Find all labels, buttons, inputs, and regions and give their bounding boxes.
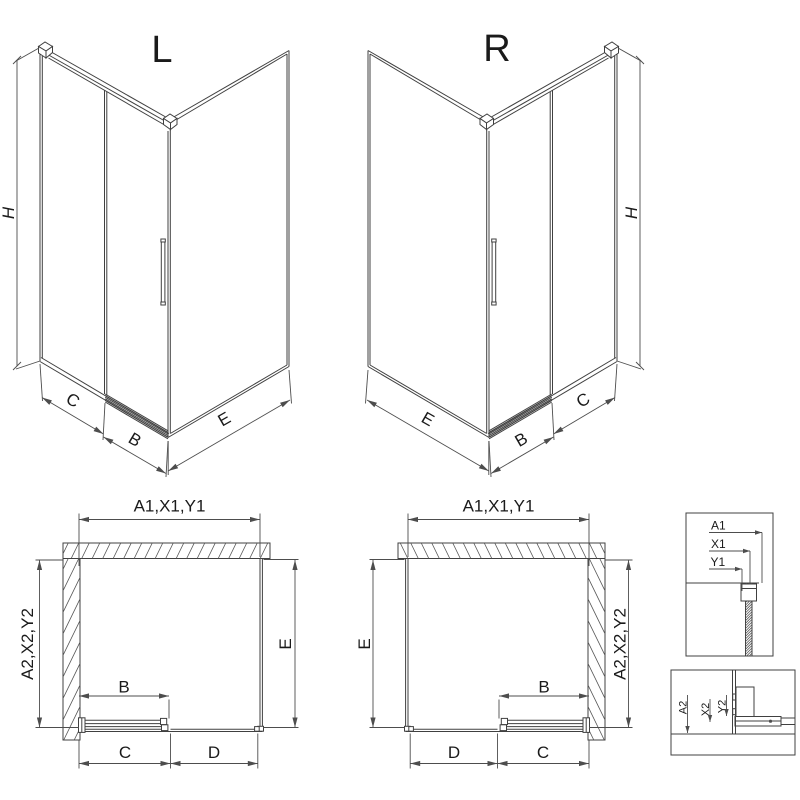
dim-label-e-plan-right: E <box>355 638 374 649</box>
door-handle <box>161 239 165 305</box>
technical-drawing-page: L H C B E R H E B C <box>0 0 800 800</box>
dim-label-a1-right: A1,X1,Y1 <box>463 497 535 516</box>
dim-label-b-plan-right: B <box>538 678 549 697</box>
detail-label-a2: A2 <box>678 701 690 714</box>
dim-label-e-right: E <box>418 408 437 430</box>
rail-screw-dot <box>769 720 772 723</box>
dim-label-c-right: C <box>573 389 593 412</box>
dim-label-h-left: H <box>0 206 18 219</box>
dim-label-b-plan-left: B <box>118 678 129 697</box>
dim-label-a2-right: A2,X2,Y2 <box>611 608 630 680</box>
wall-side-hatch <box>63 559 80 741</box>
detail-label-x2: X2 <box>700 703 712 716</box>
detail-label-a1: A1 <box>711 519 726 533</box>
dim-a2 <box>36 560 80 728</box>
dim-label-b-right: B <box>512 429 531 451</box>
detail-label-x1: X1 <box>711 537 726 551</box>
glass-top-profile <box>741 584 757 601</box>
dim-label-b-left: B <box>125 429 145 451</box>
dim-label-a2-left: A2,X2,Y2 <box>18 608 37 680</box>
iso-right-view: R H E B C <box>366 28 645 477</box>
detail-width-box: A1 X1 Y1 <box>686 513 773 656</box>
dim-b <box>79 693 169 718</box>
bottom-guide-profile <box>736 687 754 717</box>
dim-label-c-left: C <box>63 389 83 412</box>
shower-enclosure-drawing: L H C B E R H E B C <box>0 0 800 800</box>
variant-label-left: L <box>151 29 172 71</box>
dim-label-c-plan-right: C <box>537 743 549 762</box>
dim-label-e-plan-left: E <box>276 638 295 649</box>
door-assembly <box>79 718 260 733</box>
dim-label-a1-left: A1,X1,Y1 <box>134 497 206 516</box>
iso-left-view: L H C B E <box>0 29 292 477</box>
plan-right-view: A1,X1,Y1 A2,X2,Y2 E B D C <box>355 497 633 769</box>
plan-geometry <box>36 514 299 769</box>
dim-label-e-left: E <box>215 408 234 430</box>
iso-enclosure-geometry <box>13 42 292 477</box>
dim-label-c-plan-left: C <box>119 743 131 762</box>
dim-label-d-plan-right: D <box>448 743 460 762</box>
dim-label-d-plan-left: D <box>208 743 220 762</box>
wall-top-hatch <box>63 543 268 559</box>
variant-label-right: R <box>483 28 510 70</box>
dim-label-h-right: H <box>622 206 641 219</box>
detail-depth-box: A2 X2 Y2 <box>671 670 795 755</box>
detail-label-y1: Y1 <box>711 555 726 569</box>
plan-left-view: A1,X1,Y1 A2,X2,Y2 E B C D <box>18 497 299 769</box>
